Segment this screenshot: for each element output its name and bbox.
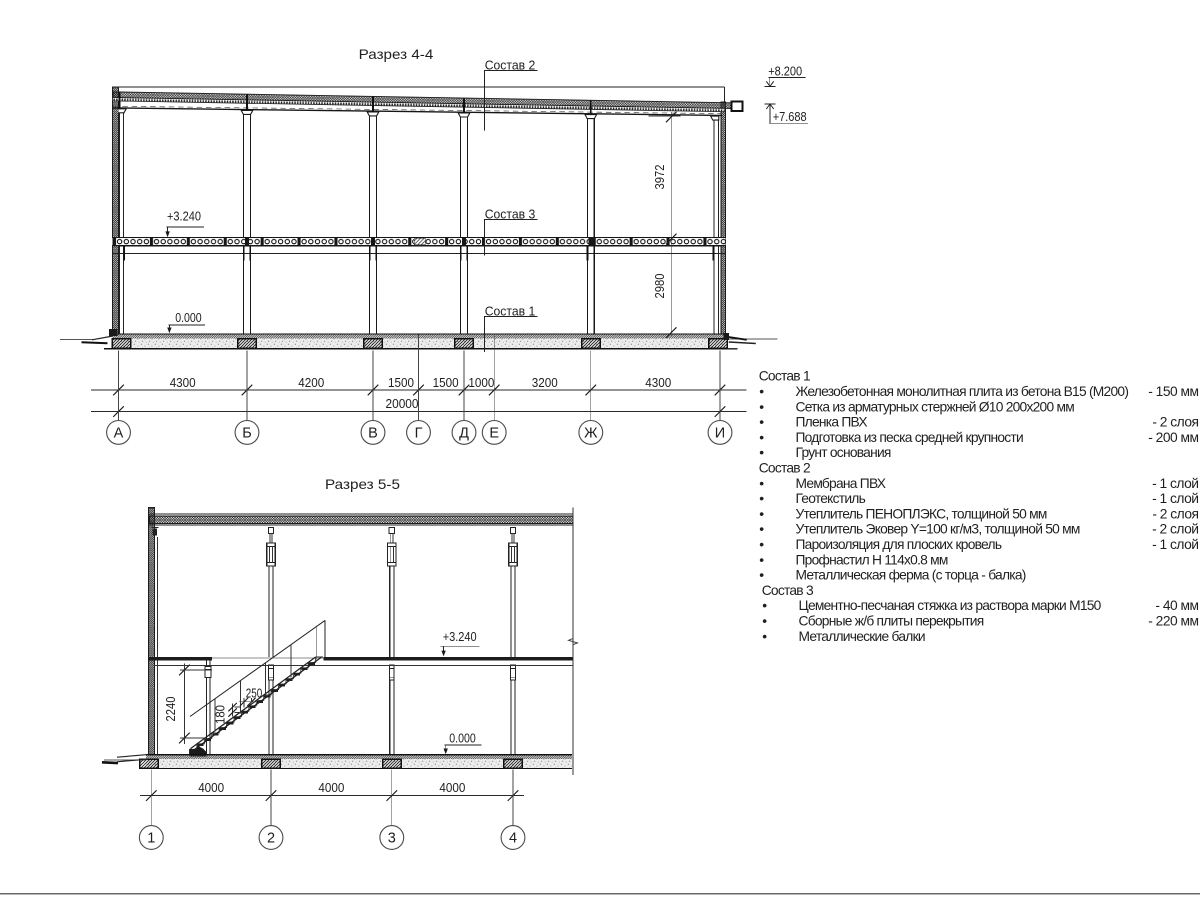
svg-text:+3.240: +3.240 — [167, 209, 201, 223]
svg-text:3972: 3972 — [653, 164, 667, 189]
svg-text:- 1 слой: - 1 слой — [1152, 491, 1198, 506]
svg-text:1: 1 — [147, 831, 155, 847]
svg-text:- 1 слой: - 1 слой — [1152, 476, 1198, 491]
svg-text:•: • — [759, 506, 764, 521]
svg-text:- 2 слоя: - 2 слоя — [1152, 415, 1198, 430]
svg-text:1500: 1500 — [433, 376, 459, 390]
svg-text:Профнастил Н 114х0.8 мм: Профнастил Н 114х0.8 мм — [796, 552, 948, 567]
svg-text:- 40 мм: - 40 мм — [1155, 598, 1198, 613]
svg-text:4300: 4300 — [645, 376, 671, 390]
svg-text:Состав 1: Состав 1 — [759, 369, 810, 384]
svg-text:+3.240: +3.240 — [443, 630, 477, 644]
svg-text:Цементно-песчаная стяжка из ра: Цементно-песчаная стяжка из раствора мар… — [799, 598, 1102, 613]
svg-text:2980: 2980 — [653, 273, 667, 298]
svg-text:- 220 мм: - 220 мм — [1148, 614, 1198, 629]
svg-text:0.000: 0.000 — [175, 311, 202, 325]
svg-text:•: • — [759, 568, 764, 583]
svg-text:•: • — [759, 399, 764, 414]
svg-text:Б: Б — [242, 425, 252, 441]
svg-text:Состав 2: Состав 2 — [759, 461, 810, 476]
svg-text:250: 250 — [246, 687, 263, 701]
svg-text:•: • — [762, 598, 767, 613]
svg-text:•: • — [759, 415, 764, 430]
svg-text:Состав 3: Состав 3 — [762, 583, 814, 598]
svg-text:Мембрана ПВХ: Мембрана ПВХ — [796, 476, 886, 491]
svg-text:4000: 4000 — [198, 781, 224, 795]
svg-text:2240: 2240 — [164, 696, 178, 721]
svg-text:4: 4 — [509, 831, 517, 847]
svg-text:4000: 4000 — [318, 781, 344, 795]
svg-text:В: В — [368, 425, 378, 441]
svg-text:- 2 слоя: - 2 слоя — [1152, 506, 1198, 521]
svg-text:- 200 мм: - 200 мм — [1148, 430, 1198, 445]
svg-text:Д: Д — [459, 425, 469, 441]
svg-text:1000: 1000 — [468, 376, 494, 390]
svg-text:180: 180 — [213, 705, 227, 724]
svg-text:- 1 слой: - 1 слой — [1152, 537, 1198, 552]
svg-text:•: • — [762, 614, 767, 629]
svg-text:Е: Е — [489, 425, 499, 441]
svg-text:•: • — [759, 491, 764, 506]
svg-text:Пароизоляция для плоских крове: Пароизоляция для плоских кровель — [796, 537, 1002, 552]
svg-text:Геотекстиль: Геотекстиль — [796, 491, 866, 506]
svg-text:4000: 4000 — [439, 781, 465, 795]
svg-text:2: 2 — [267, 831, 275, 847]
svg-text:Подготовка из песка средней кр: Подготовка из песка средней крупности — [796, 430, 1023, 445]
svg-text:•: • — [759, 430, 764, 445]
svg-text:Г: Г — [415, 425, 423, 441]
svg-text:4300: 4300 — [170, 376, 196, 390]
svg-text:•: • — [759, 537, 764, 552]
svg-text:•: • — [762, 629, 767, 644]
svg-text:•: • — [759, 384, 764, 399]
svg-text:- 150 мм: - 150 мм — [1148, 384, 1198, 399]
svg-text:3: 3 — [388, 831, 396, 847]
svg-text:Пленка ПВХ: Пленка ПВХ — [796, 415, 868, 430]
svg-text:•: • — [759, 445, 764, 460]
svg-text:•: • — [759, 522, 764, 537]
svg-text:+8.200: +8.200 — [768, 64, 802, 78]
svg-text:Железобетонная монолитная плит: Железобетонная монолитная плита из бетон… — [796, 384, 1129, 399]
svg-text:Металлические балки: Металлические балки — [799, 629, 925, 644]
svg-text:А: А — [114, 425, 124, 441]
svg-text:•: • — [759, 476, 764, 491]
svg-text:Утеплитель ПЕНОПЛЭКС, толщиной: Утеплитель ПЕНОПЛЭКС, толщиной 50 мм — [796, 506, 1047, 521]
svg-text:3200: 3200 — [532, 376, 558, 390]
svg-text:Разрез 5-5: Разрез 5-5 — [325, 476, 400, 492]
svg-text:Сетка из арматурных стержней Ø: Сетка из арматурных стержней Ø10 200х200… — [796, 399, 1075, 414]
svg-text:И: И — [715, 425, 725, 441]
svg-text:1500: 1500 — [388, 376, 414, 390]
svg-text:0.000: 0.000 — [449, 731, 476, 745]
svg-text:Сборные ж/б плиты перекрытия: Сборные ж/б плиты перекрытия — [799, 614, 984, 629]
svg-text:Грунт основания: Грунт основания — [796, 445, 891, 460]
svg-text:Разрез 4-4: Разрез 4-4 — [359, 46, 434, 62]
svg-text:Металлическая ферма (с торца -: Металлическая ферма (с торца - балка) — [796, 568, 1026, 583]
svg-text:20000: 20000 — [386, 397, 419, 411]
svg-text:Утеплитель Эковер Y=100 кг/м3,: Утеплитель Эковер Y=100 кг/м3, толщиной … — [796, 522, 1080, 537]
svg-text:+7.688: +7.688 — [773, 110, 807, 124]
svg-text:•: • — [759, 552, 764, 567]
svg-text:4200: 4200 — [298, 376, 324, 390]
svg-text:Ж: Ж — [584, 425, 598, 441]
svg-text:- 2 слой: - 2 слой — [1152, 522, 1198, 537]
